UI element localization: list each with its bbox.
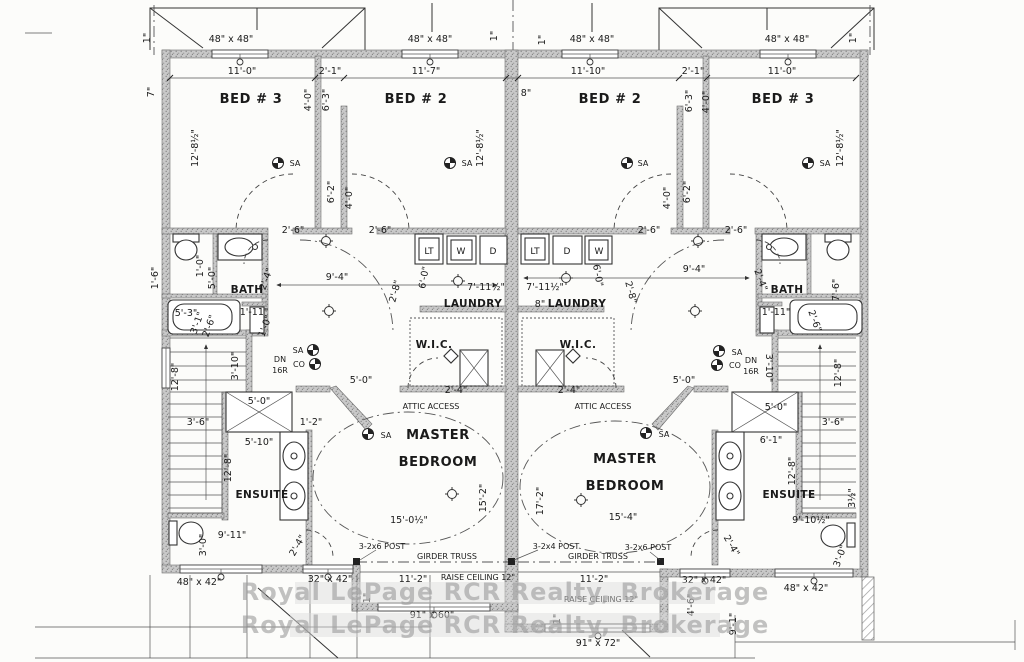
dimension-label: 9'-4" [683, 264, 706, 275]
dimension-label: 6'-2" [682, 181, 693, 204]
stairs-riser-label: 16R [743, 367, 759, 376]
smoke-detector-icon [803, 158, 814, 169]
smoke-alarm-label: SA [290, 159, 301, 168]
dimension-label: 6'-3" [321, 89, 332, 112]
dimension-label: 11'-10" [571, 66, 606, 77]
watermark-text: Royal LePage RCR Realty, Brokerage [241, 611, 769, 639]
smoke-alarm-label: SA [659, 430, 670, 439]
party-wall [505, 50, 518, 632]
dimension-label: 11'-7" [412, 66, 441, 77]
dimension-label: 15'-4" [609, 512, 638, 523]
floor-plan-drawing: 48" x 48" 48" x 48" 48" x 48" 48" x 48" … [0, 0, 1024, 662]
dimension-label: 12'-8" [787, 457, 798, 486]
dimension-label: 4'-0" [701, 91, 712, 114]
room-label-bed2-left: BED # 2 [385, 92, 448, 107]
dimension-label: 12'-8" [223, 454, 234, 483]
window-size-label: 48" x 42" [177, 577, 222, 588]
dryer-label: D [490, 247, 497, 257]
co-detector-icon [310, 359, 321, 370]
room-label-master-right-2: BEDROOM [586, 479, 665, 494]
dimension-label: 6'-0" [590, 264, 605, 288]
dimension-label: 12'-8½" [475, 129, 486, 167]
light-diamond-icon [566, 349, 580, 363]
room-label-master-left: MASTER [406, 428, 470, 443]
ceiling-light-icon [319, 234, 333, 248]
door-swing-arc [236, 174, 293, 230]
post-mark [353, 558, 360, 565]
wall [671, 228, 730, 234]
room-label-master-left-2: BEDROOM [399, 455, 478, 470]
smoke-alarm-label: SA [820, 159, 831, 168]
ceiling-light-icon [691, 234, 705, 248]
toilet-icon [825, 234, 851, 260]
door-swing-arc [730, 174, 787, 230]
girder-truss-label: GIRDER TRUSS [568, 552, 628, 561]
dimension-label: 1" [537, 35, 548, 45]
attic-access-hatch [460, 350, 488, 386]
window [162, 348, 170, 388]
smoke-alarm-label: SA [638, 159, 649, 168]
room-label-bed3-left: BED # 3 [220, 92, 283, 107]
floor-plan-page: 48" x 48" 48" x 48" 48" x 48" 48" x 48" … [0, 0, 1024, 662]
dimension-label: 15'-2" [478, 484, 489, 513]
double-sink-vanity-icon [716, 432, 744, 520]
dimension-label: 12'-8½" [190, 129, 201, 167]
window-size-label: 48" x 48" [408, 34, 453, 45]
dimension-label: 1" [489, 31, 500, 41]
post-mark [508, 558, 515, 565]
ceiling-light-icon [322, 304, 336, 318]
window-size-label: 48" x 48" [765, 34, 810, 45]
dimension-label: 9'-4" [326, 272, 349, 283]
wall [758, 302, 782, 306]
dimension-label: 2'-4" [721, 533, 742, 558]
dimension-label: 4'-0" [344, 187, 355, 210]
dimension-label: 5'-0" [765, 402, 788, 413]
room-label-bath-left: BATH [231, 284, 264, 296]
dimension-label: 2'-4" [751, 268, 769, 293]
wall [703, 56, 709, 228]
smoke-alarm-label: SA [293, 346, 304, 355]
wall [242, 302, 266, 306]
stairs-down-label: DN [745, 356, 757, 365]
room-label-ensuite-left: ENSUITE [235, 489, 288, 501]
wall [246, 330, 252, 392]
door-swing-arc [586, 358, 616, 388]
smoke-alarm-label: SA [462, 159, 473, 168]
wall [296, 386, 330, 392]
dimension-label: 1'-2" [300, 417, 323, 428]
dimension-label: 2'-1" [682, 66, 705, 77]
wall [162, 228, 268, 234]
dimension-label: 5'-10" [245, 437, 274, 448]
dimension-label: 9'-11" [218, 530, 247, 541]
dimension-label: 1" [848, 33, 859, 43]
dimension-label: 1" [142, 33, 153, 43]
sink-icon [762, 234, 806, 260]
double-sink-vanity-icon [280, 432, 308, 520]
post-label: 3-2x6 POST [625, 543, 672, 552]
dimension-label: 3'-6" [187, 417, 210, 428]
wall [518, 228, 646, 234]
dimension-label: 5'-0" [673, 375, 696, 386]
window-size-label: 48" x 42" [784, 583, 829, 594]
dimension-label: 8" [521, 88, 531, 99]
wall [694, 386, 728, 392]
sink-icon [218, 234, 262, 260]
room-label-ensuite-right: ENSUITE [762, 489, 815, 501]
room-label-bed3-right: BED # 3 [752, 92, 815, 107]
smoke-detector-icon [273, 158, 284, 169]
dimension-label: 9'-10½" [792, 515, 830, 526]
laundry-tub-label: LT [530, 247, 540, 257]
wall [755, 228, 861, 234]
dimension-label: 17'-2" [535, 487, 546, 516]
post-mark [657, 558, 664, 565]
dimension-label: 12'-8" [170, 363, 181, 392]
co-alarm-label: CO [293, 360, 305, 369]
dimension-label: 3½" [847, 488, 858, 508]
dimension-label: 3'-6" [822, 417, 845, 428]
dimension-label: 8" [535, 299, 545, 310]
room-label-bath-right: BATH [771, 284, 804, 296]
door-swing-arc [408, 358, 438, 388]
co-alarm-label: CO [729, 361, 741, 370]
smoke-detector-icon [445, 158, 456, 169]
wall [168, 513, 224, 518]
dimension-label: 5'-0" [350, 375, 373, 386]
dimension-label: 4'-0" [303, 89, 314, 112]
dimension-label: 2'-6" [282, 225, 305, 236]
co-detector-icon [712, 360, 723, 371]
dimension-label: 5'-0" [248, 396, 271, 407]
roof-outline [25, 0, 874, 55]
walls [162, 50, 874, 640]
dimension-label: 2'-6" [725, 225, 748, 236]
wall [807, 234, 811, 294]
toilet-icon [821, 523, 855, 547]
hall-arc [300, 240, 393, 333]
smoke-detector-icon [363, 429, 374, 440]
dimension-label: 6'-1" [760, 435, 783, 446]
angled-wall [330, 386, 372, 430]
dimension-label: 6'-2" [326, 181, 337, 204]
dimension-label: 11'-0" [768, 66, 797, 77]
dimension-label: 2'-1" [319, 66, 342, 77]
dimension-label: 11'-0" [228, 66, 257, 77]
room-label-laundry-left: LAUNDRY [444, 298, 502, 310]
dimension-label: 6'-3" [684, 90, 695, 113]
smoke-detector-icon [714, 346, 725, 357]
wall [677, 106, 683, 228]
attic-access-label: ATTIC ACCESS [403, 402, 460, 411]
dimension-label: 3'-10" [230, 352, 241, 381]
ceiling-light-icon [451, 274, 465, 288]
washer-label: W [457, 247, 466, 257]
dimension-label: 3'-10" [763, 354, 774, 383]
wall [315, 56, 321, 228]
room-label-wic-left: W.I.C. [416, 339, 453, 351]
dryer-label: D [564, 247, 571, 257]
smoke-alarm-label: SA [732, 348, 743, 357]
dimension-label: 2'-8" [622, 280, 638, 305]
dimension-label: 2'-4" [558, 385, 581, 396]
dimension-label: 15'-0½" [390, 515, 428, 526]
bathtub-icon [790, 300, 862, 334]
window-size-label: 48" x 48" [570, 34, 615, 45]
smoke-alarm-label: SA [381, 431, 392, 440]
smoke-detector-icon [308, 345, 319, 356]
dimension-label: 4'-0" [662, 187, 673, 210]
post-label: 3-2x6 POST [359, 542, 406, 551]
dimension-label: 2'-4" [445, 385, 468, 396]
light-diamond-icon [444, 349, 458, 363]
laundry-tub-label: LT [424, 247, 434, 257]
dimension-label: 2'-4" [287, 533, 308, 558]
angled-wall [652, 386, 694, 430]
room-label-wic-right: W.I.C. [560, 339, 597, 351]
dimension-label: 1'-0" [195, 255, 206, 278]
stairs-riser-label: 16R [272, 366, 288, 375]
room-label-master-right: MASTER [593, 452, 657, 467]
smoke-detector-icon [622, 158, 633, 169]
watermark-text: Royal LePage RCR Realty, Brokerage [241, 578, 769, 606]
wall [377, 228, 506, 234]
stairs-down-label: DN [274, 355, 286, 364]
dimension-label: 7'-11½" [467, 282, 505, 293]
dimension-label: 5'-0" [207, 267, 218, 290]
ceiling-light-icon [445, 487, 459, 501]
girder-truss-label: GIRDER TRUSS [417, 552, 477, 561]
ceiling-light-icon [688, 304, 702, 318]
dimension-label: 7'-6" [831, 279, 842, 302]
room-label-bed2-right: BED # 2 [579, 92, 642, 107]
washer-label: W [595, 247, 604, 257]
door-swing-arc [352, 174, 409, 230]
dimension-label: 7'-11½" [526, 282, 564, 293]
dimension-label: 7" [146, 87, 157, 97]
hall-arc [631, 240, 724, 333]
dimension-label: 1'-11" [762, 307, 791, 318]
post-label: 3-2x4 POST [533, 542, 580, 551]
dimension-label: 12'-8½" [835, 129, 846, 167]
window-size-label: 48" x 48" [209, 34, 254, 45]
window-size-label: 91" x 72" [576, 638, 621, 649]
smoke-detector-icon [641, 428, 652, 439]
dimension-label: 2'-8" [387, 279, 403, 304]
dimension-label: 2'-6" [369, 225, 392, 236]
ceiling-light-icon [574, 493, 588, 507]
wall-hatched [862, 577, 874, 640]
dimension-label: 1'-6" [150, 267, 161, 290]
attic-access-label: ATTIC ACCESS [575, 402, 632, 411]
dimension-label: 12'-8" [833, 359, 844, 388]
attic-access-hatch [536, 350, 564, 386]
dimension-label: 6'-0" [417, 266, 432, 290]
room-label-laundry-right: LAUNDRY [548, 298, 606, 310]
dimension-label: 3'-0" [198, 534, 209, 557]
dimension-label: 2'-6" [638, 225, 661, 236]
